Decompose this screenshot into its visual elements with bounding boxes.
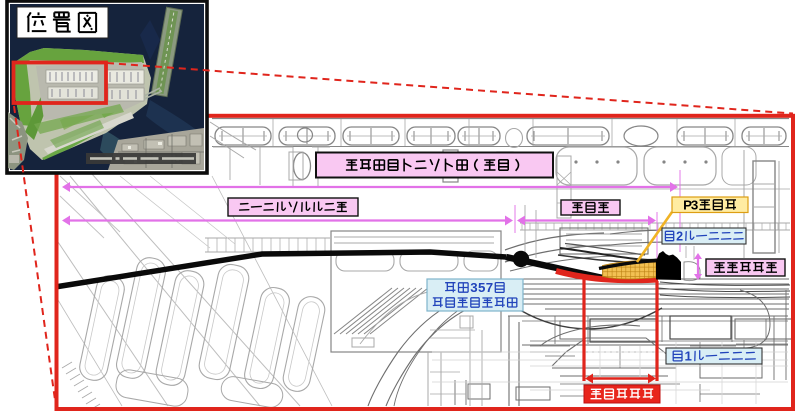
svg-text:3: 3 [470, 280, 477, 295]
svg-text:7: 7 [486, 280, 493, 295]
svg-text:3: 3 [691, 197, 698, 212]
svg-text:1: 1 [685, 349, 693, 364]
svg-text:5: 5 [478, 280, 486, 295]
svg-text:2: 2 [676, 229, 683, 243]
